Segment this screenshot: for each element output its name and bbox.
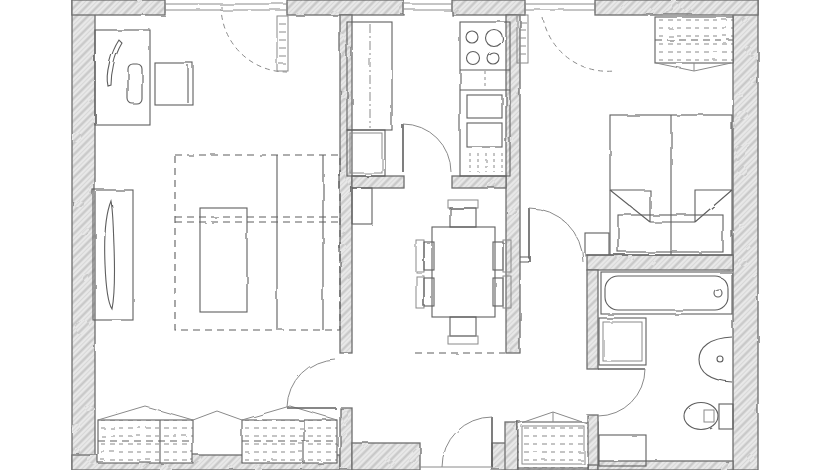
wardrobe-left-doors [98,406,193,420]
wall-kitchen-bottom-right [452,176,506,188]
wall-stub-living-door [340,408,352,470]
wall-bathroom-top [587,255,733,270]
coffee-table [200,208,247,312]
washing-machine [599,318,646,365]
burner-small [466,31,478,43]
bedroom-wardrobe [655,17,733,71]
lower-cabinet [467,123,502,147]
kitchen [347,22,510,176]
wall-top-3 [452,0,525,15]
entrance-door-swing [442,417,492,467]
living-room-door [287,359,336,408]
toilet-bowl [684,403,718,430]
bed-duvet-right [695,190,732,222]
burner-medium-1 [467,52,480,65]
bathroom-door-swing [598,369,645,416]
nightstand [585,233,609,255]
washbasin [699,337,732,382]
bathtub [601,272,732,314]
sofa-backrest-lines [277,155,323,330]
living-door-swing [287,359,335,407]
wall-bathroom-left-lower [587,415,598,465]
wall-top-1 [72,0,165,15]
washbasin-faucet [717,356,723,362]
dining-chair-top [448,200,478,227]
wall-right [733,0,758,470]
bed-duvet-left [610,190,650,222]
wall-left [72,0,95,470]
sink-cabinet [467,95,502,118]
casement-swing-bedroom [543,18,614,71]
toilet [684,403,733,430]
floor-plan-canvas [0,0,815,470]
bedroom [529,17,733,262]
bedroom-door-swing [529,208,583,262]
kitchen-door-swing [403,124,451,172]
wardrobe-mid-doors [193,411,242,420]
wall-bathroom-left-upper [587,270,598,369]
sofa-bed [175,155,340,330]
burner-medium-2 [487,52,499,64]
bedroom-door-jamb-mark [520,257,529,262]
bathroom [598,272,733,466]
bedroom-wardrobe-doors [656,63,731,71]
floor-plan [0,0,815,470]
wall-kitchen-bottom-left [352,176,404,188]
kitchen-door [403,124,451,172]
living-room [93,30,340,463]
bathtub-drain [714,289,722,297]
stove-counter [460,22,510,176]
dining-table [432,227,495,317]
double-bed [610,115,732,255]
radiator [352,188,372,224]
hall-closet [518,412,588,468]
wall-stub-closet-left [505,422,518,470]
base-cabinet [347,130,385,176]
wall-top-2 [287,0,404,15]
window-kitchen [404,2,452,13]
window-living-room [165,2,288,72]
dining-chair-left-2 [416,276,434,308]
wardrobe-left [98,406,193,463]
dining-chair-bottom [448,317,478,344]
toilet-tank [719,404,733,429]
bedroom-door [529,208,583,262]
wall-living-right [340,15,352,353]
entrance-door [420,417,492,467]
dining-area [352,188,511,353]
side-table [155,63,193,105]
bathroom-door [598,369,645,416]
dining-chair-left-1 [416,240,434,272]
wall-top-4 [595,0,758,15]
wall-bottom-hall-left [352,443,420,470]
burner-large [486,30,503,47]
tv-panel [105,201,115,309]
desk-lamp [107,40,122,86]
wall-kitchen-bedroom [506,15,520,353]
desk-chair [128,64,142,104]
